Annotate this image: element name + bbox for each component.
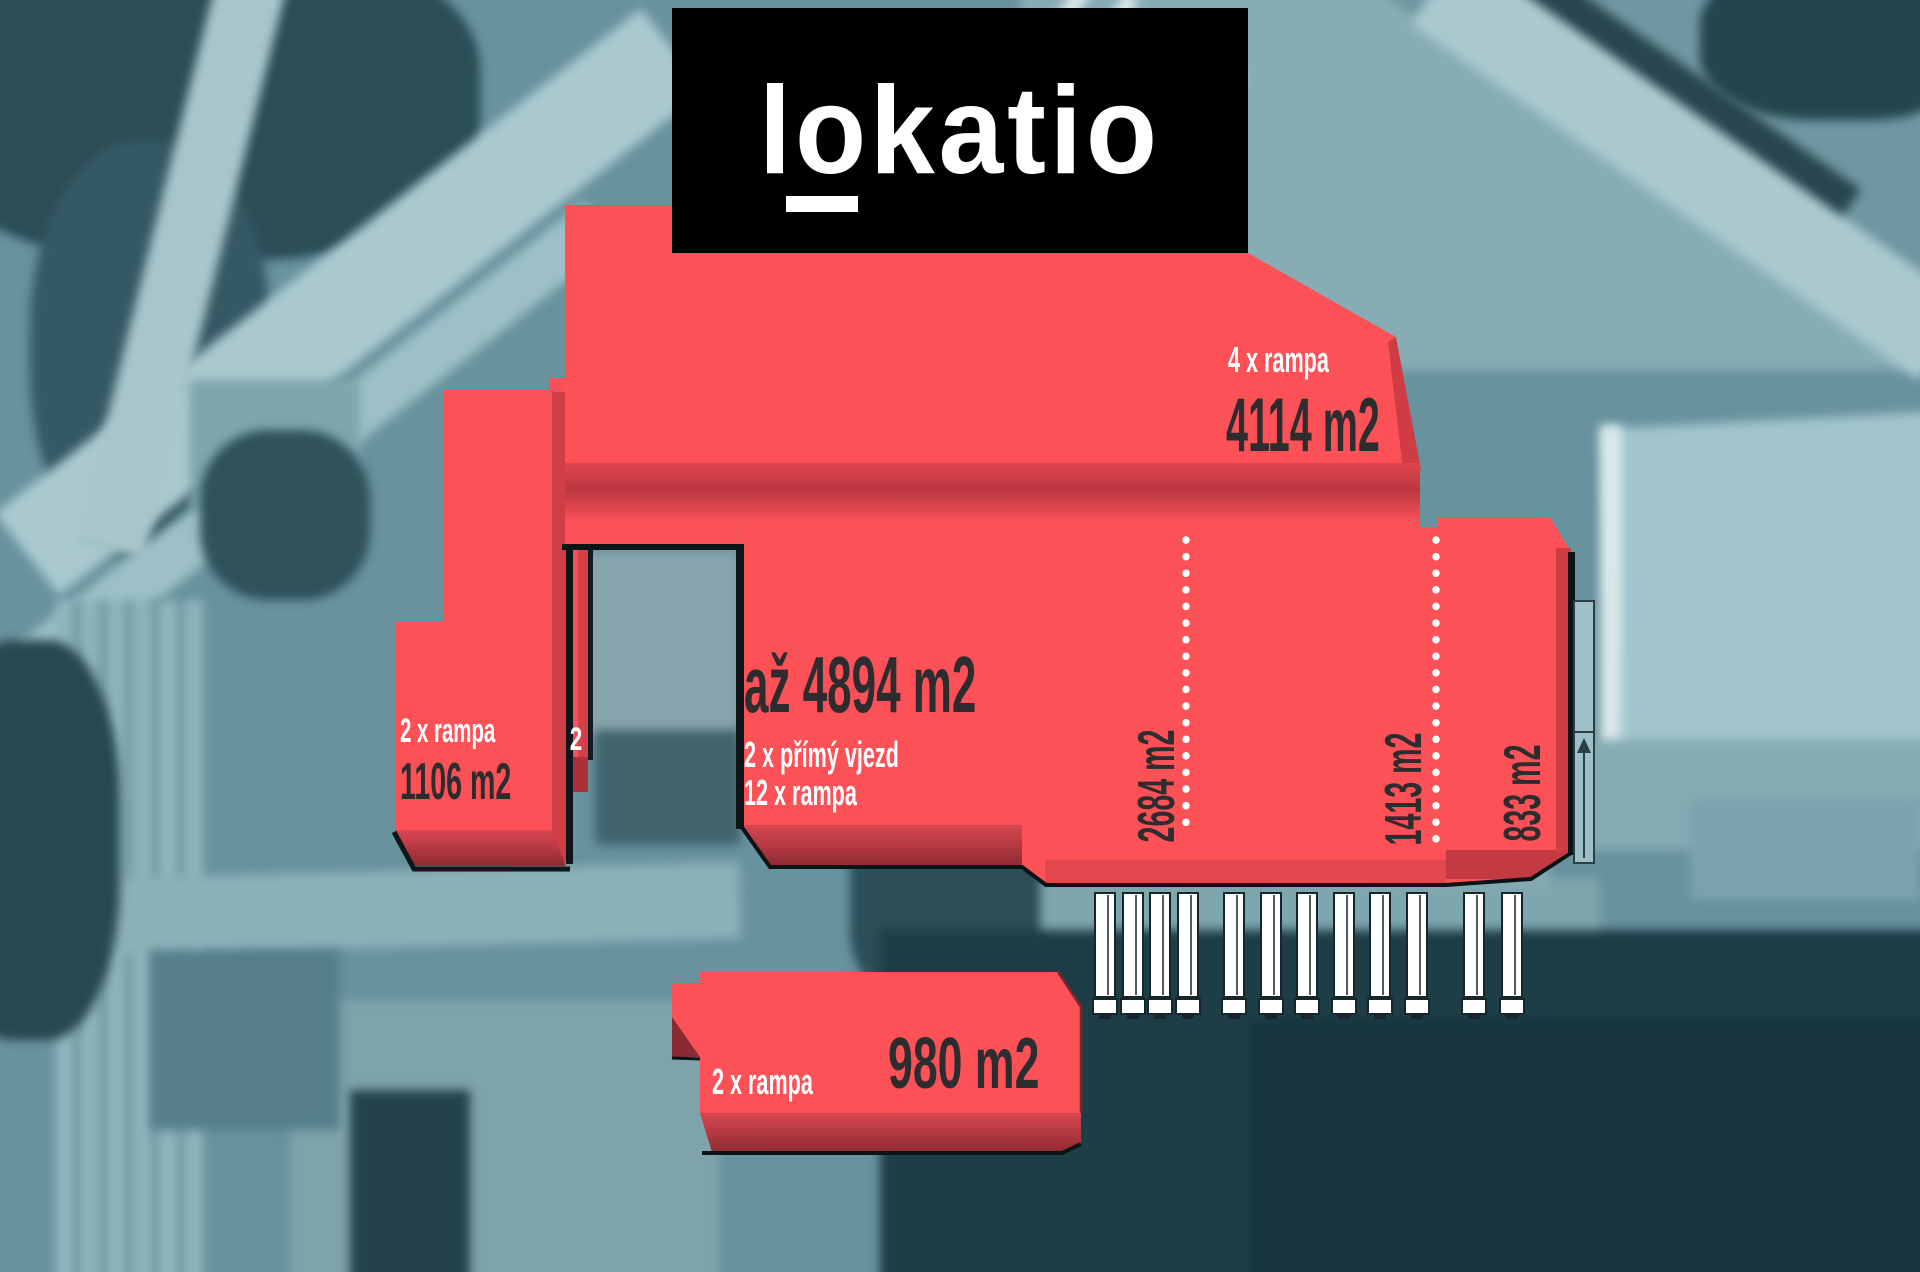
- truck-dock-row: [1093, 893, 1524, 1019]
- top-building-area-label: 4114 m2: [1226, 388, 1380, 464]
- truck-dock-icon: [1259, 893, 1283, 1019]
- section-area-label-833: 833 m2: [1497, 744, 1549, 841]
- truck-dock-icon: [1093, 893, 1117, 1019]
- truck-dock-icon: [1332, 893, 1356, 1019]
- left-building-rampa-label: 2 x rampa: [400, 714, 495, 748]
- step-shadow-band: [565, 463, 1420, 522]
- top-building-rampa-label: 4 x rampa: [1228, 342, 1329, 378]
- truck-dock-icon: [1148, 893, 1172, 1019]
- truck-dock-icon: [1121, 893, 1145, 1019]
- truck-dock-icon: [1405, 893, 1429, 1019]
- logo: lokatio: [672, 8, 1248, 253]
- partial-label: 2: [570, 721, 582, 757]
- main-building-rampa-label: 12 x rampa: [744, 775, 857, 811]
- truck-dock-icon: [1222, 893, 1246, 1019]
- truck-dock-icon: [1295, 893, 1319, 1019]
- bottom-building-area-label: 980 m2: [888, 1028, 1039, 1100]
- section-area-label-1413: 1413 m2: [1378, 733, 1430, 846]
- dock-panel: [1574, 601, 1594, 732]
- section-area-label-2684: 2684 m2: [1131, 730, 1183, 843]
- main-building-entry-label: 2 x přímý vjezd: [744, 737, 899, 773]
- logo-underline: [786, 196, 858, 212]
- truck-dock-icon: [1368, 893, 1392, 1019]
- main-building-area-label: až 4894 m2: [744, 645, 976, 725]
- aerial-map: 2: [0, 0, 1920, 1272]
- truck-dock-icon: [1176, 893, 1200, 1019]
- dock-panels: [1574, 601, 1594, 863]
- bottom-building-rampa-label: 2 x rampa: [712, 1064, 813, 1100]
- logo-text: lokatio: [759, 69, 1161, 193]
- truck-dock-icon: [1462, 893, 1486, 1019]
- left-building-area-label: 1106 m2: [400, 756, 511, 808]
- truck-dock-icon: [1500, 893, 1524, 1019]
